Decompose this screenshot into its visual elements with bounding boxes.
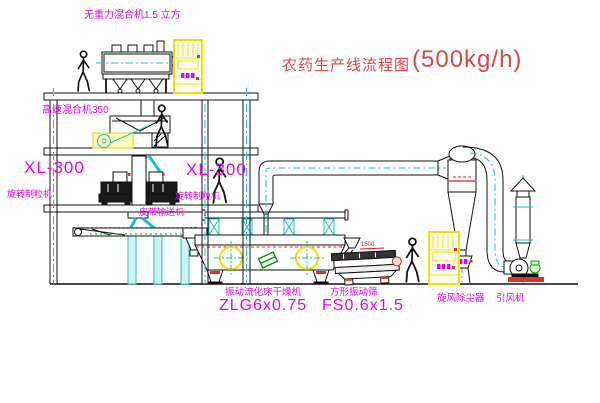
label-cyclone: 旋风除尘器 xyxy=(437,294,485,304)
diagram-title-text: 农药生产线流程图 xyxy=(282,54,410,75)
belt-conveyor-drawing xyxy=(73,228,199,285)
fluid-bed-dryer-drawing xyxy=(195,210,353,284)
label-gravity-mixer: 无重力混合机1.5 立方 xyxy=(84,11,181,21)
control-cabinet-right xyxy=(429,232,459,284)
person-figure-ground xyxy=(406,238,418,282)
granulator-right-drawing xyxy=(144,172,179,205)
person-figure-top-floor xyxy=(78,51,89,91)
label-dryer-model: ZLG6x0.75 xyxy=(219,298,307,314)
diagram-title-capacity: (500kg/h) xyxy=(412,46,522,74)
flow-diagram-canvas: 农药生产线流程图 (500kg/h) 无重力混合机1.5 立方 高速混合机350… xyxy=(0,0,600,403)
exhaust-duct xyxy=(259,156,450,235)
label-granulator-left-name: 旋转制粒机 xyxy=(7,190,52,199)
label-granulator-right-model: XL-300 xyxy=(186,161,247,178)
granulator-left-drawing xyxy=(99,172,134,205)
label-granulator-left-model: XL-300 xyxy=(24,159,85,176)
label-sieve-model: FS0.6x1.5 xyxy=(322,298,404,314)
label-belt-conveyor: 皮带输送机 xyxy=(139,208,184,217)
label-high-speed-mixer: 高速混合机350 xyxy=(42,106,109,116)
label-granulator-right-name: 旋转制粒机 xyxy=(175,192,220,201)
diagram-title: 农药生产线流程图 (500kg/h) xyxy=(282,46,522,75)
label-sieve-dimension: 1500 xyxy=(361,242,374,248)
label-induced-draft-fan: 引风机 xyxy=(496,294,525,304)
control-cabinet-top xyxy=(174,40,202,93)
